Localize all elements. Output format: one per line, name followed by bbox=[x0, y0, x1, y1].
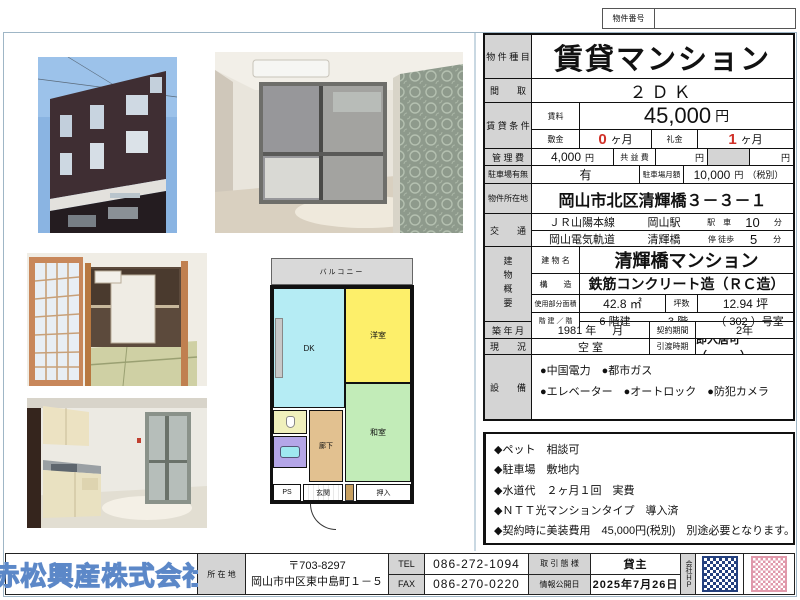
row-parking: 駐車場有無 有 駐車場月額 10,000 円 （税別） bbox=[485, 166, 793, 184]
layout-value: ２ＤＫ bbox=[532, 79, 793, 102]
transport-time-1: 10 bbox=[745, 215, 759, 230]
management-fee-value: 4,000 bbox=[551, 150, 581, 164]
equipment-list: ●中国電力 ●都市ガス ●エレベーター ●オートロック ●防犯カメラ bbox=[532, 355, 793, 419]
company-hp-qr-cell bbox=[696, 554, 744, 594]
property-type-value: 賃貸マンション bbox=[532, 35, 793, 78]
floorplan-japanese-label: 和室 bbox=[370, 427, 386, 438]
row-property-type: 物 件 種 目 賃貸マンション bbox=[485, 35, 793, 79]
deal-info-block: 取 引 態 様 貸主 情報公開日 2025年7月26日 bbox=[529, 554, 681, 594]
company-location-label: 所 在 地 bbox=[198, 554, 246, 594]
structure-value: 鉄筋コンクリート造（ＲＣ造） bbox=[580, 274, 793, 294]
note-line: ◆水道代 ２ヶ月１回 実費 bbox=[494, 481, 634, 501]
floorplan-hallway-label: 廊下 bbox=[319, 441, 333, 451]
common-fee-label: 共 益 費 bbox=[614, 149, 656, 165]
parking-value: 有 bbox=[532, 166, 640, 183]
management-fee-cell: 4,000 円 bbox=[532, 149, 614, 165]
bathtub-icon bbox=[280, 446, 300, 458]
floorplan-room-western: 洋室 bbox=[345, 288, 411, 383]
deal-type-value: 貸主 bbox=[591, 554, 680, 574]
deal-type-label: 取 引 態 様 bbox=[529, 554, 591, 574]
row-address: 物件所在地 岡山市北区清輝橋３－３－１ bbox=[485, 184, 793, 214]
company-postal: 〒703-8297 bbox=[288, 558, 346, 575]
building-exterior-illustration bbox=[38, 57, 177, 233]
photo-living-room bbox=[215, 52, 463, 233]
publish-date-row: 情報公開日 2025年7月26日 bbox=[529, 575, 680, 595]
floorplan-entrance-label: 玄関 bbox=[316, 488, 330, 498]
photo-japanese-room bbox=[27, 253, 207, 386]
living-room-illustration bbox=[215, 52, 463, 233]
keymoney-label: 礼金 bbox=[652, 130, 698, 148]
property-number-box: 物件番号 bbox=[602, 8, 796, 29]
floorplan-balcony: バルコニー bbox=[271, 258, 413, 285]
parking-fee-unit: 円 bbox=[734, 168, 743, 181]
tel-label: TEL bbox=[389, 554, 425, 574]
building-summary-label: 建物概要 bbox=[485, 247, 532, 321]
extra-fee-label-cell bbox=[708, 149, 750, 165]
floorplan-toilet bbox=[273, 410, 307, 434]
management-fee-unit: 円 bbox=[585, 151, 594, 164]
toilet-icon bbox=[286, 416, 295, 428]
publish-date-value: 2025年7月26日 bbox=[591, 575, 680, 595]
building-name-row: 建 物 名 清輝橋マンション bbox=[532, 247, 793, 274]
fax-row: FAX 086-270-0220 bbox=[389, 575, 528, 595]
management-fee-label: 管 理 費 bbox=[485, 149, 532, 165]
tsubo-value: 12.94 坪 bbox=[698, 295, 793, 312]
note-line: ◆ペット 相談可 bbox=[494, 440, 579, 460]
handover-value: 即入居可 （ ） bbox=[696, 339, 793, 354]
transport-mode-2: 停 徒歩 bbox=[708, 234, 734, 245]
keymoney-value-cell: 1 ヶ月 bbox=[698, 130, 793, 148]
floorplan-closet-label: 押入 bbox=[377, 488, 391, 498]
transport-access-1: 駅 車 10 分 bbox=[696, 214, 793, 230]
floorplan-ps-label: PS bbox=[282, 489, 291, 496]
property-sheet: 物件番号 bbox=[0, 0, 800, 600]
company-address-line: 岡山市中区東中島町１－５ bbox=[251, 574, 383, 591]
status-value: 空 室 bbox=[532, 339, 650, 354]
row-management-fee: 管 理 費 4,000 円 共 益 費 円 円 bbox=[485, 149, 793, 166]
built-year: 1981 年 bbox=[558, 322, 597, 338]
structure-row: 構 造 鉄筋コンクリート造（ＲＣ造） bbox=[532, 274, 793, 295]
deal-type-row: 取 引 態 様 貸主 bbox=[529, 554, 680, 575]
built-date-cell: 1981 年 月 bbox=[532, 322, 650, 338]
floorplan-bath bbox=[273, 436, 307, 468]
transport-row-1: ＪＲ山陽本線 岡山駅 駅 車 10 分 bbox=[532, 214, 793, 231]
transport-label: 交 通 bbox=[485, 214, 532, 246]
note-line: ◆ＮＴＴ光マンションタイプ 導入済 bbox=[494, 501, 678, 521]
area-row: 使用部分面積 42.8 ㎡ 坪数 12.94 坪 bbox=[532, 295, 793, 313]
note-line: ◆契約時に美装費用 45,000円(税別) 別途必要となります。 bbox=[494, 521, 795, 541]
contract-value: 2年 bbox=[696, 322, 793, 338]
floorplan-hallway: 廊下 bbox=[309, 410, 343, 482]
deposit-keymoney-row: 敷金 0 ヶ月 礼金 1 ヶ月 bbox=[532, 130, 793, 148]
floorplan-kitchen-counter bbox=[275, 318, 283, 378]
parking-label: 駐車場有無 bbox=[485, 166, 532, 183]
rent-label: 賃料 bbox=[532, 103, 580, 129]
floorplan-closet: 押入 bbox=[356, 484, 411, 501]
transport-time-2: 5 bbox=[750, 232, 757, 247]
company-name: 赤松興産株式会社 bbox=[6, 554, 198, 594]
property-number-label: 物件番号 bbox=[602, 8, 655, 29]
built-date-label: 築 年 月 bbox=[485, 322, 532, 338]
common-fee-unit: 円 bbox=[656, 149, 708, 165]
entrance-door-swing bbox=[310, 504, 336, 530]
photo-building-exterior bbox=[38, 57, 177, 233]
publish-date-label: 情報公開日 bbox=[529, 575, 591, 595]
secondary-qr-code bbox=[751, 556, 787, 592]
kitchen-illustration bbox=[27, 398, 207, 528]
building-name-label: 建 物 名 bbox=[532, 247, 580, 273]
keymoney-unit: ヶ月 bbox=[741, 131, 763, 147]
row-building-summary: 建物概要 建 物 名 清輝橋マンション 構 造 鉄筋コンクリート造（ＲＣ造） 使… bbox=[485, 247, 793, 322]
company-hp-qr-code bbox=[702, 556, 738, 592]
equipment-line: ●エレベーター ●オートロック ●防犯カメラ bbox=[540, 382, 769, 403]
transport-line-1: ＪＲ山陽本線 bbox=[532, 214, 632, 230]
transport-min-unit-2: 分 bbox=[773, 234, 781, 245]
handover-label: 引渡時期 bbox=[650, 339, 696, 354]
extra-fee-unit: 円 bbox=[750, 149, 793, 165]
layout-label: 間 取 bbox=[485, 79, 532, 102]
row-rent-conditions: 賃 貸 条 件 賃料 45,000 円 敷金 0 ヶ月 礼金 bbox=[485, 103, 793, 149]
row-transport: 交 通 ＪＲ山陽本線 岡山駅 駅 車 10 分 岡山電気軌道 清輝橋 停 徒歩 bbox=[485, 214, 793, 247]
company-address: 〒703-8297 岡山市中区東中島町１－５ bbox=[246, 554, 389, 594]
tel-row: TEL 086-272-1094 bbox=[389, 554, 528, 575]
address-value: 岡山市北区清輝橋３－３－１ bbox=[532, 184, 793, 213]
deposit-value-cell: 0 ヶ月 bbox=[580, 130, 652, 148]
notes-box: 備 考 ◆ペット 相談可 ◆駐車場 敷地内 ◆水道代 ２ヶ月１回 実費 ◆ＮＴＴ… bbox=[483, 432, 795, 545]
floorplan-room-japanese: 和室 bbox=[345, 383, 411, 482]
rent-row: 賃料 45,000 円 bbox=[532, 103, 793, 130]
footer-bar: 赤松興産株式会社 所 在 地 〒703-8297 岡山市中区東中島町１－５ TE… bbox=[5, 553, 795, 595]
fax-value: 086-270-0220 bbox=[425, 575, 528, 595]
deposit-unit: ヶ月 bbox=[611, 131, 633, 147]
secondary-qr-cell bbox=[744, 554, 794, 594]
parking-fee-tax: （税別） bbox=[747, 168, 783, 181]
row-status: 現 況 空 室 引渡時期 即入居可 （ ） bbox=[485, 339, 793, 355]
building-name-value: 清輝橋マンション bbox=[580, 247, 793, 273]
rent-value: 45,000 bbox=[644, 103, 711, 129]
floorplan-ps: PS bbox=[273, 484, 301, 501]
equipment-line: ●中国電力 ●都市ガス bbox=[540, 361, 652, 382]
photo-kitchen bbox=[27, 398, 207, 528]
row-layout: 間 取 ２ＤＫ bbox=[485, 79, 793, 103]
tel-value: 086-272-1094 bbox=[425, 554, 528, 574]
structure-label: 構 造 bbox=[532, 274, 580, 294]
phone-block: TEL 086-272-1094 FAX 086-270-0220 bbox=[389, 554, 529, 594]
equipment-label: 設 備 bbox=[485, 355, 532, 419]
contract-label: 契約期間 bbox=[650, 322, 696, 338]
floorplan-room-dk: DK bbox=[273, 288, 345, 408]
japanese-room-illustration bbox=[27, 253, 207, 386]
floorplan-dk-label: DK bbox=[303, 344, 314, 353]
address-label: 物件所在地 bbox=[485, 184, 532, 213]
area-value: 42.8 ㎡ bbox=[580, 295, 666, 312]
transport-access-2: 停 徒歩 5 分 bbox=[696, 231, 793, 247]
deposit-value: 0 bbox=[598, 131, 606, 148]
deposit-label: 敷金 bbox=[532, 130, 580, 148]
company-hp-label: 会社ＨＰ bbox=[681, 554, 696, 594]
transport-line-2: 岡山電気軌道 bbox=[532, 231, 632, 247]
property-number-value bbox=[655, 8, 796, 29]
transport-mode-1: 駅 車 bbox=[707, 217, 731, 228]
area-label: 使用部分面積 bbox=[532, 295, 580, 312]
transport-min-unit-1: 分 bbox=[774, 217, 782, 228]
parking-fee-label: 駐車場月額 bbox=[640, 166, 684, 183]
notes-list: ◆ペット 相談可 ◆駐車場 敷地内 ◆水道代 ２ヶ月１回 実費 ◆ＮＴＴ光マンシ… bbox=[486, 434, 800, 543]
parking-fee-value: 10,000 bbox=[694, 168, 731, 182]
floorplan-western-label: 洋室 bbox=[370, 330, 386, 341]
row-built-date: 築 年 月 1981 年 月 契約期間 2年 bbox=[485, 322, 793, 339]
transport-station-1: 岡山駅 bbox=[632, 214, 696, 230]
transport-station-2: 清輝橋 bbox=[632, 231, 696, 247]
fax-label: FAX bbox=[389, 575, 425, 595]
floorplan-door-block bbox=[345, 484, 354, 501]
status-label: 現 況 bbox=[485, 339, 532, 354]
row-equipment: 設 備 ●中国電力 ●都市ガス ●エレベーター ●オートロック ●防犯カメラ bbox=[485, 355, 793, 419]
built-month-label: 月 bbox=[612, 322, 623, 338]
pane-divider bbox=[474, 33, 476, 551]
rent-section-label: 賃 貸 条 件 bbox=[485, 103, 532, 148]
parking-fee-cell: 10,000 円 （税別） bbox=[684, 166, 793, 183]
floorplan-entrance: 玄関 bbox=[303, 484, 343, 501]
property-type-label: 物 件 種 目 bbox=[485, 35, 532, 78]
floor-plan: バルコニー DK 洋室 和室 廊下 PS 玄関 押入 bbox=[270, 258, 415, 538]
rent-unit: 円 bbox=[715, 106, 729, 126]
keymoney-value: 1 bbox=[728, 131, 736, 148]
tsubo-label: 坪数 bbox=[666, 295, 698, 312]
note-line: ◆駐車場 敷地内 bbox=[494, 460, 579, 480]
transport-row-2: 岡山電気軌道 清輝橋 停 徒歩 5 分 bbox=[532, 231, 793, 247]
rent-value-cell: 45,000 円 bbox=[580, 103, 793, 129]
property-detail-table: 物 件 種 目 賃貸マンション 間 取 ２ＤＫ 賃 貸 条 件 賃料 45,00… bbox=[483, 33, 795, 421]
